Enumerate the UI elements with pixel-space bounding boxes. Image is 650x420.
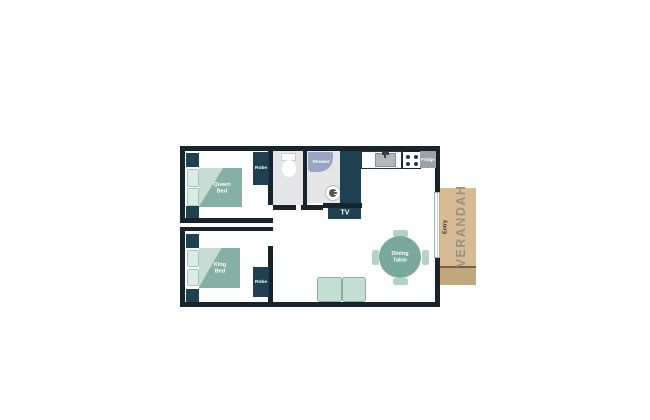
wall-queen-bottom [180, 218, 273, 223]
couch-cushion [342, 277, 367, 302]
sink-tap [384, 155, 386, 159]
tv-label: TV [334, 209, 355, 217]
stove-burner [414, 155, 418, 159]
king-bed-label: King Bed [209, 262, 231, 274]
floor-plan: VERANDAH Shower Fridge TV Queen B [0, 0, 650, 420]
bedside-table [186, 153, 199, 167]
robe-label: Robe [251, 279, 270, 284]
dining-table-label: Dining Table [389, 251, 411, 263]
bedside-table [186, 234, 199, 248]
entry-door [434, 192, 441, 258]
washing-machine-dial [334, 194, 338, 196]
toilet-sliding-door [273, 205, 296, 210]
queen-bed-label: Queen Bed [211, 181, 233, 193]
stove-burner [406, 155, 410, 159]
pillow [187, 188, 199, 206]
couch-cushion [317, 277, 342, 302]
pillow [187, 250, 199, 268]
verandah-label: VERANDAH [454, 185, 468, 268]
entry-label: Entry [441, 220, 447, 234]
wall-bath-divider [303, 151, 307, 205]
wall-left-upper [180, 146, 185, 223]
shower-label: Shower [311, 159, 330, 164]
shower-sliding-door [301, 205, 323, 210]
wall-right-lower [435, 258, 440, 307]
entry-door-line [437, 193, 438, 257]
bedside-table [186, 289, 199, 302]
pillow [187, 169, 199, 187]
dining-chair [422, 250, 429, 265]
stove-burner [406, 162, 410, 166]
bedside-table [186, 206, 199, 219]
wall-bottom [180, 302, 440, 307]
robe-label: Robe [251, 166, 270, 171]
dining-chair [372, 250, 379, 265]
kitchen-bench [340, 151, 361, 203]
wall-right-upper [435, 146, 440, 192]
stove-burner [414, 162, 418, 166]
dining-chair [393, 278, 408, 285]
pillow [187, 269, 199, 287]
fridge-label: Fridge [419, 157, 437, 162]
wall-king-top [180, 227, 273, 232]
wall-left-lower [180, 227, 185, 308]
washing-machine-dial [334, 191, 338, 193]
toilet-bowl [282, 160, 296, 177]
verandah-step [440, 268, 476, 285]
